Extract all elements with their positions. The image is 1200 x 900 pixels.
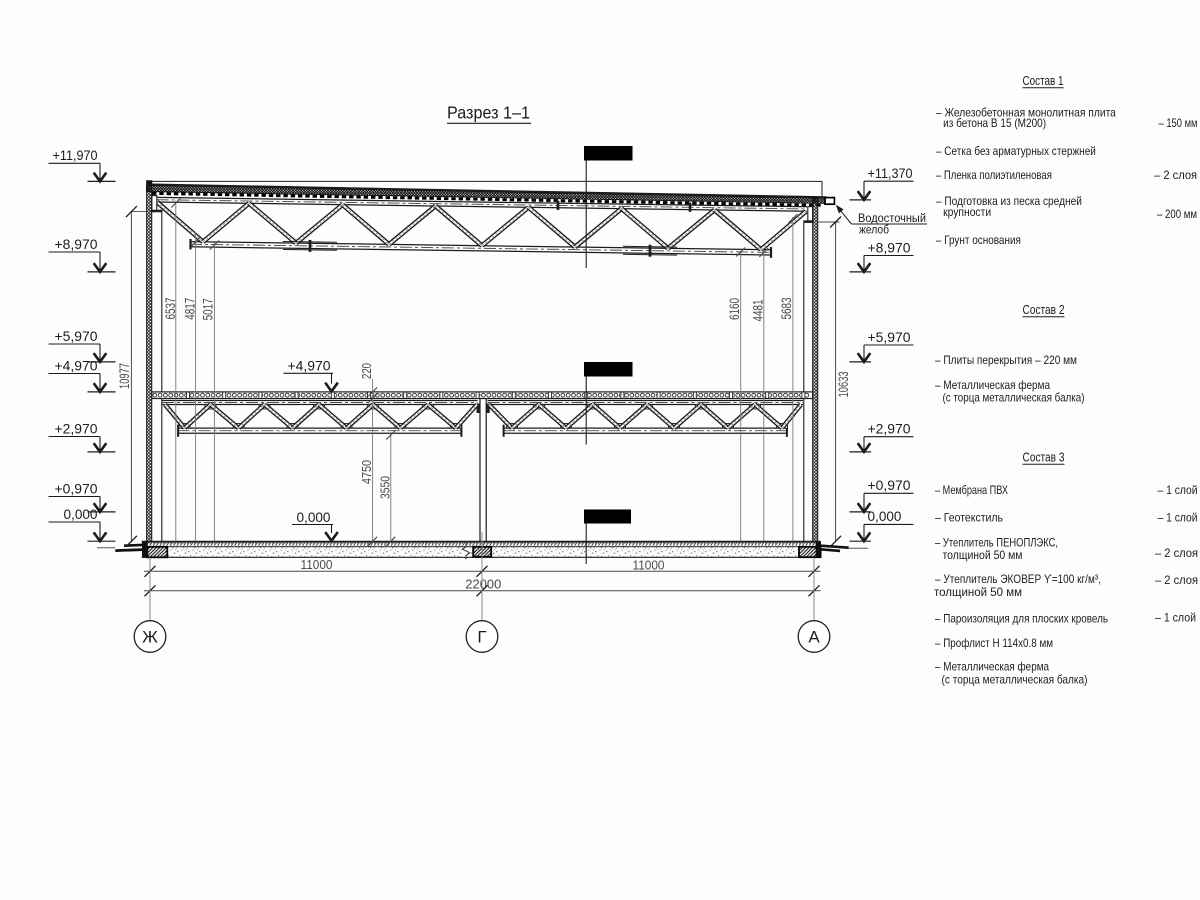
svg-text:10633: 10633 xyxy=(836,371,851,397)
svg-text:– Пленка полиэтиленовая: – Пленка полиэтиленовая xyxy=(936,168,1052,182)
svg-text:А: А xyxy=(808,628,820,647)
svg-text:Ж: Ж xyxy=(142,628,158,647)
svg-text:6160: 6160 xyxy=(727,298,742,320)
svg-text:+11,970: +11,970 xyxy=(53,147,98,163)
svg-text:4750: 4750 xyxy=(360,460,374,484)
svg-text:– Утеплитель ЭКОВЕР Ƴ=100 кг/м: – Утеплитель ЭКОВЕР Ƴ=100 кг/м³, xyxy=(935,572,1101,586)
svg-text:11000: 11000 xyxy=(633,559,665,573)
svg-text:6537: 6537 xyxy=(163,298,178,320)
svg-text:– 1 слой: – 1 слой xyxy=(1155,611,1196,625)
svg-text:22000: 22000 xyxy=(465,578,501,592)
svg-text:Состав 3: Состав 3 xyxy=(1023,451,1065,465)
svg-text:220: 220 xyxy=(360,363,374,379)
svg-text:– 2 слоя: – 2 слоя xyxy=(1155,573,1198,587)
svg-text:11000: 11000 xyxy=(301,558,333,572)
svg-text:10977: 10977 xyxy=(117,363,132,389)
svg-text:– Плиты перекрытия – 220 мм: – Плиты перекрытия – 220 мм xyxy=(935,353,1077,367)
svg-text:+4,970: +4,970 xyxy=(288,358,331,374)
svg-text:Разрез 1–1: Разрез 1–1 xyxy=(447,102,530,122)
svg-text:– 1 слой: – 1 слой xyxy=(1158,483,1198,497)
svg-text:+2,970: +2,970 xyxy=(55,420,98,436)
svg-text:– Геотекстиль: – Геотекстиль xyxy=(935,511,1003,525)
svg-text:– Сетка без арматурных стержне: – Сетка без арматурных стержней xyxy=(936,144,1096,158)
svg-text:+0,970: +0,970 xyxy=(868,477,911,493)
svg-text:– Профлист Н 114х0.8 мм: – Профлист Н 114х0.8 мм xyxy=(935,636,1053,650)
svg-text:– 2 слоя: – 2 слоя xyxy=(1155,546,1198,560)
svg-text:+11,370: +11,370 xyxy=(868,165,913,181)
svg-text:– Мембрана ПВХ: – Мембрана ПВХ xyxy=(935,483,1008,497)
svg-text:из бетона В 15 (М200): из бетона В 15 (М200) xyxy=(943,116,1046,130)
svg-text:(с торца металлическая балка): (с торца металлическая балка) xyxy=(943,391,1085,405)
svg-text:4817: 4817 xyxy=(183,298,198,320)
svg-text:+5,970: +5,970 xyxy=(868,329,911,345)
svg-text:(с торца металлическая балка): (с торца металлическая балка) xyxy=(942,673,1088,687)
svg-text:– 150 мм: – 150 мм xyxy=(1159,116,1198,130)
svg-text:+8,970: +8,970 xyxy=(55,236,98,252)
svg-text:4481: 4481 xyxy=(751,300,766,322)
svg-text:5017: 5017 xyxy=(201,298,216,320)
svg-text:– 200 мм: – 200 мм xyxy=(1157,207,1197,221)
svg-text:– 2 слоя: – 2 слоя xyxy=(1154,168,1197,182)
svg-text:Г: Г xyxy=(477,628,486,647)
svg-text:0,000: 0,000 xyxy=(297,509,331,525)
svg-text:3550: 3550 xyxy=(378,476,392,499)
svg-text:крупности: крупности xyxy=(943,205,991,219)
svg-text:+0,970: +0,970 xyxy=(55,480,98,496)
svg-text:толщиной 50 мм: толщиной 50 мм xyxy=(943,548,1023,562)
svg-text:+4,970: +4,970 xyxy=(55,357,98,373)
svg-text:Состав 1: Состав 1 xyxy=(1023,74,1064,88)
svg-text:0,000: 0,000 xyxy=(868,508,902,524)
svg-text:Состав 2: Состав 2 xyxy=(1023,303,1065,317)
svg-text:– Пароизоляция для плоских кро: – Пароизоляция для плоских кровель xyxy=(935,612,1108,626)
svg-text:+5,970: +5,970 xyxy=(55,328,98,344)
svg-text:5683: 5683 xyxy=(779,298,794,320)
svg-text:– Металлическая ферма: – Металлическая ферма xyxy=(935,660,1049,674)
svg-text:– 1 слой: – 1 слой xyxy=(1158,511,1198,525)
svg-text:+2,970: +2,970 xyxy=(868,421,911,437)
svg-text:– Грунт основания: – Грунт основания xyxy=(936,233,1021,247)
svg-text:+8,970: +8,970 xyxy=(868,239,911,255)
svg-text:толщиной 50 мм: толщиной 50 мм xyxy=(934,585,1022,599)
svg-text:0,000: 0,000 xyxy=(64,506,98,522)
